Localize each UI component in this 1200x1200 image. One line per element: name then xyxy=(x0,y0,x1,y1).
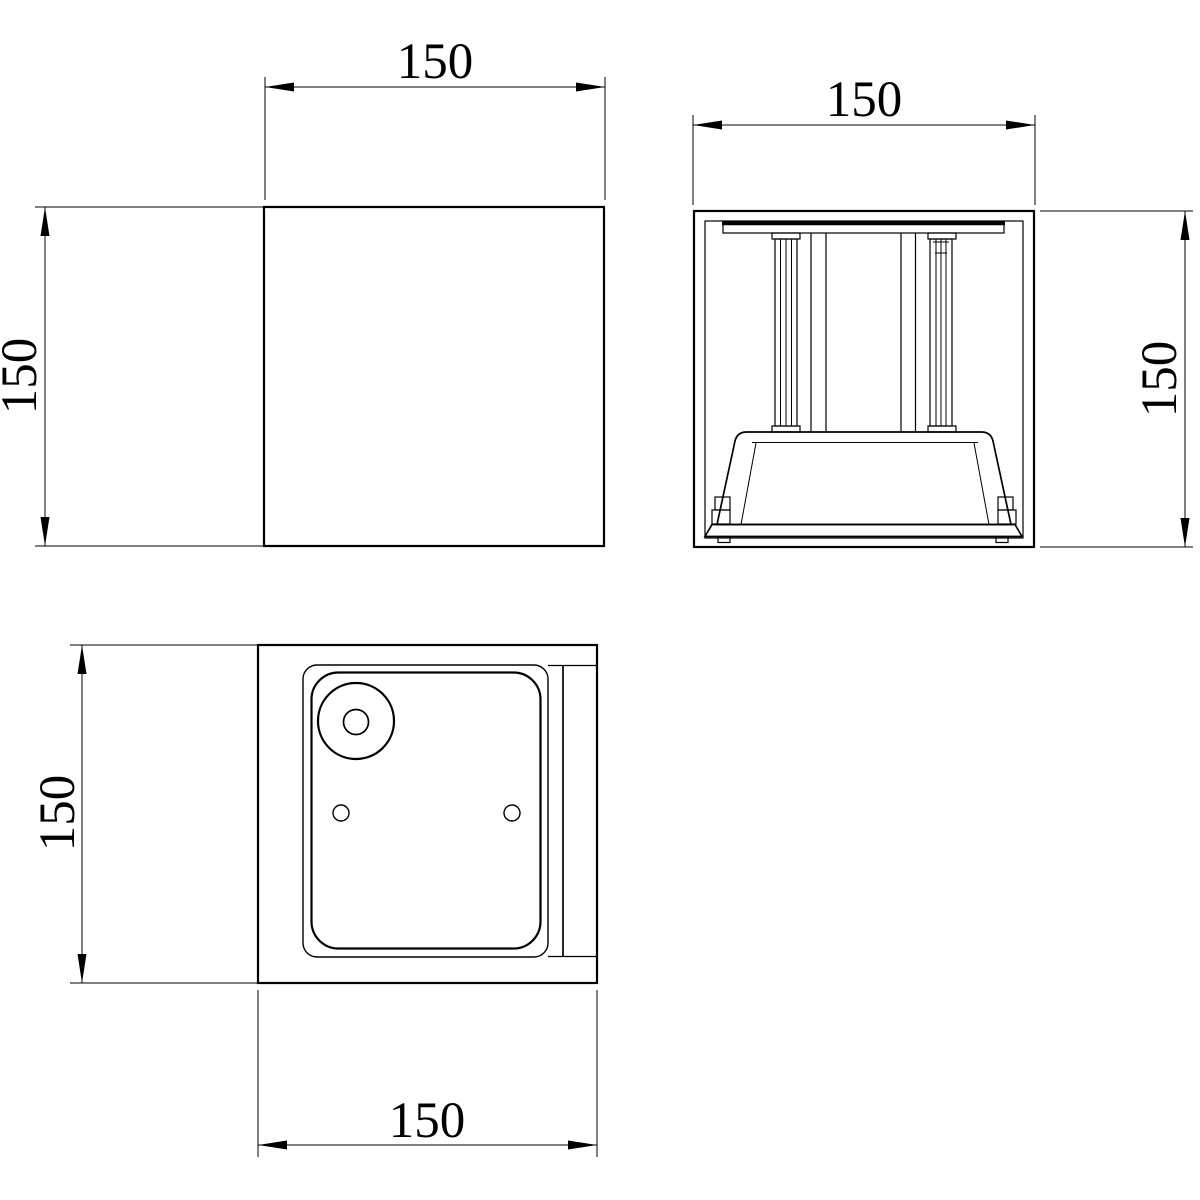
knockout-outer-circle xyxy=(318,683,394,759)
arrowhead-right xyxy=(1006,121,1035,130)
arrowhead-top xyxy=(1181,211,1190,240)
arrowhead-bottom xyxy=(78,954,87,983)
section-view: 150 150 xyxy=(693,72,1193,547)
bottom-plate-outline xyxy=(705,525,1022,537)
right-clip-lower xyxy=(998,510,1016,524)
drawing-sheet: 150 150 xyxy=(0,0,1200,1200)
screw-hole-right xyxy=(504,805,520,821)
arrowhead-left xyxy=(265,83,294,92)
left-column-cap xyxy=(772,233,800,239)
front-view: 150 150 xyxy=(0,34,605,546)
bottom-plate xyxy=(705,525,1022,543)
arrowhead-top xyxy=(78,645,87,674)
front-width-dimension: 150 xyxy=(265,34,605,200)
screw-hole-left xyxy=(333,805,349,821)
section-width-dimension: 150 xyxy=(693,72,1035,205)
arrowhead-right xyxy=(576,83,605,92)
right-column xyxy=(928,233,956,432)
front-width-label: 150 xyxy=(397,34,474,90)
bottom-view: 150 150 xyxy=(30,645,597,1157)
left-clip-lower xyxy=(712,510,730,524)
left-column xyxy=(772,233,800,432)
bottom-height-dimension: 150 xyxy=(30,645,258,983)
side-ledge xyxy=(548,666,596,957)
base-inner-slant xyxy=(741,443,756,525)
right-column-foot xyxy=(928,426,956,432)
base-outline xyxy=(717,432,1011,525)
arrowhead-top xyxy=(41,207,50,236)
front-height-dimension: 150 xyxy=(0,207,264,546)
knockout-inner-circle xyxy=(344,710,369,735)
recess-frame xyxy=(303,665,548,957)
mounting-plate xyxy=(722,222,1005,233)
section-height-label: 150 xyxy=(1132,341,1188,418)
arrowhead-bottom xyxy=(41,517,50,546)
driver-base xyxy=(717,432,1011,525)
right-column-cap xyxy=(928,233,956,239)
bottom-width-label: 150 xyxy=(389,1093,466,1149)
section-width-label: 150 xyxy=(826,72,903,128)
bottom-view-outline xyxy=(258,645,597,983)
arrowhead-left xyxy=(693,121,722,130)
section-outer-frame xyxy=(694,211,1034,547)
side-clips xyxy=(712,497,1016,524)
arrowhead-bottom xyxy=(1181,518,1190,547)
cable-knockout xyxy=(318,683,394,759)
rear-column-edges xyxy=(811,233,916,431)
arrowhead-right xyxy=(568,1141,597,1150)
section-height-dimension: 150 xyxy=(1040,211,1193,547)
front-view-outline xyxy=(264,207,604,546)
front-height-label: 150 xyxy=(0,338,48,415)
bottom-height-label: 150 xyxy=(30,775,86,852)
technical-drawing-canvas: 150 150 xyxy=(0,0,1200,1200)
base-inner-slant xyxy=(974,443,989,525)
arrowhead-left xyxy=(258,1141,287,1150)
left-column-foot xyxy=(772,426,800,432)
section-inner-wall xyxy=(705,221,1023,538)
bottom-width-dimension: 150 xyxy=(258,990,597,1157)
